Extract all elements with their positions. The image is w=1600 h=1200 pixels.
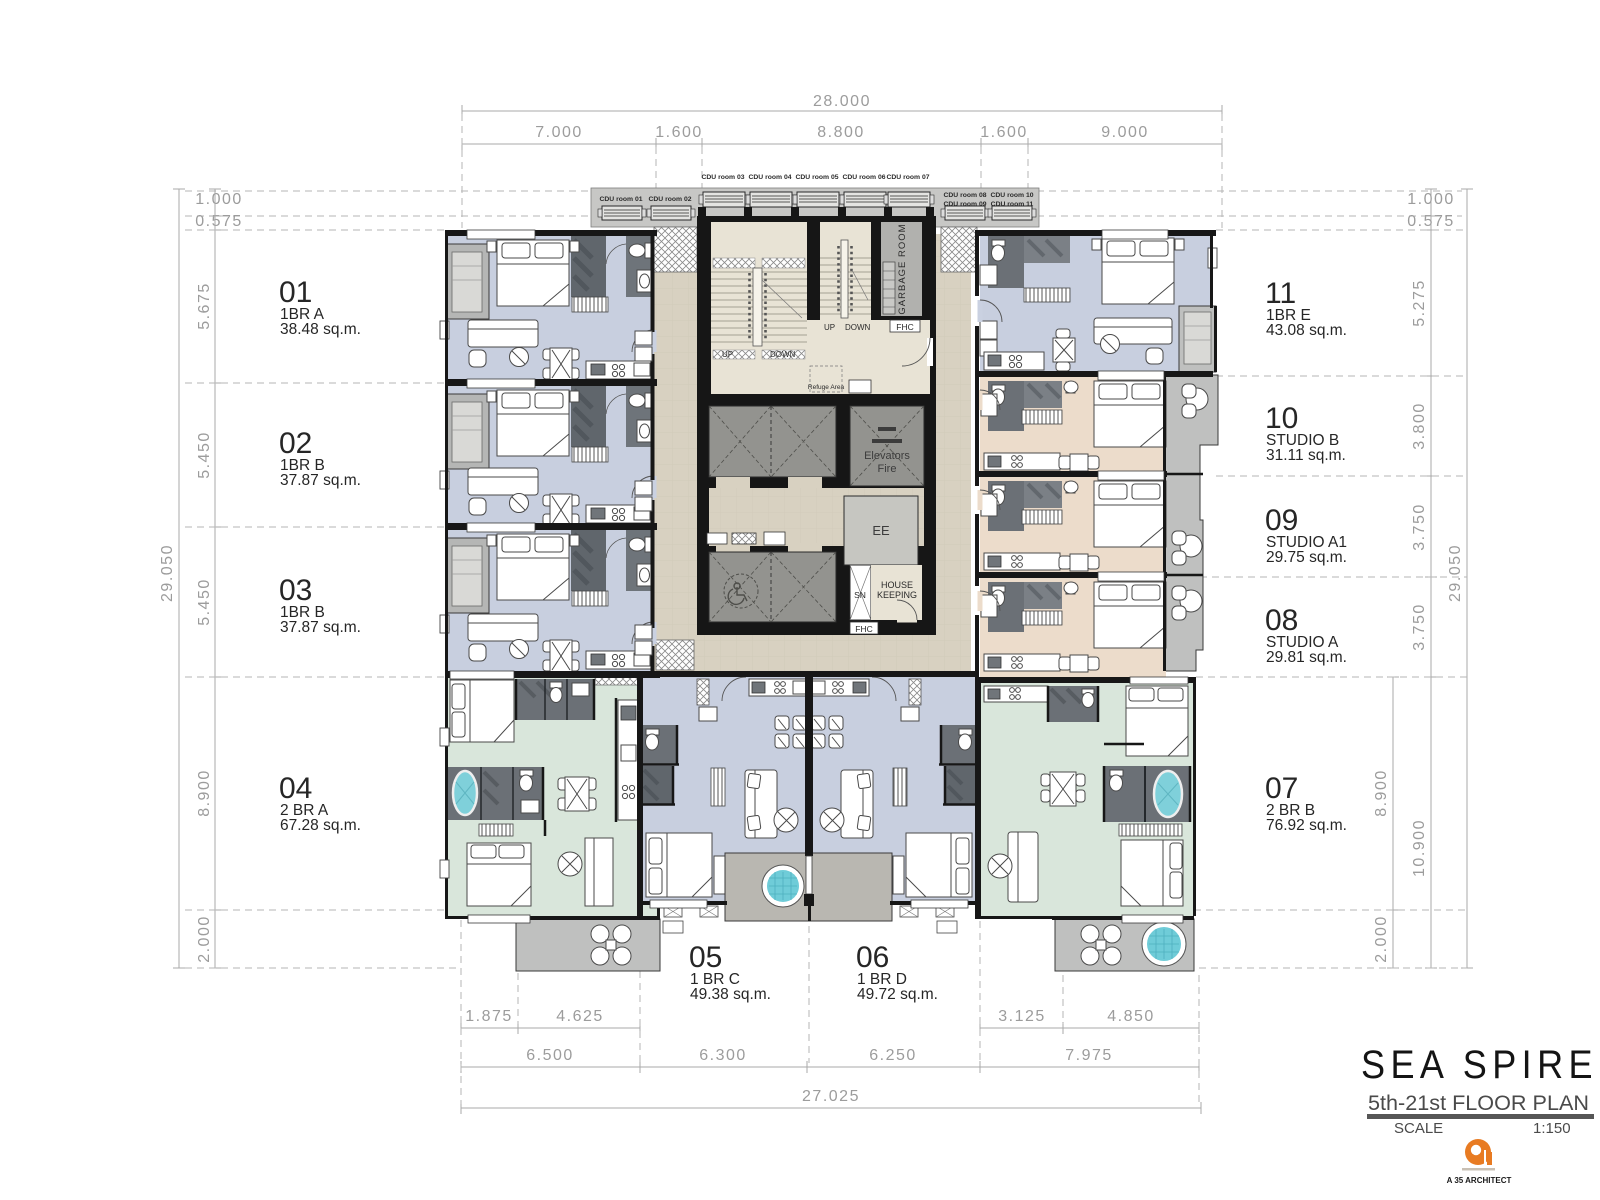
svg-text:CDU room 05: CDU room 05 xyxy=(795,174,838,181)
svg-text:01: 01 xyxy=(279,276,312,309)
svg-text:CDU room 02: CDU room 02 xyxy=(648,196,691,203)
svg-text:SCALE: SCALE xyxy=(1394,1120,1443,1137)
svg-text:3.750: 3.750 xyxy=(1411,603,1428,651)
svg-text:1:150: 1:150 xyxy=(1533,1120,1571,1137)
svg-text:5th-21st FLOOR PLAN: 5th-21st FLOOR PLAN xyxy=(1368,1092,1589,1115)
svg-text:6.300: 6.300 xyxy=(699,1047,747,1064)
svg-text:5.450: 5.450 xyxy=(196,578,213,626)
svg-text:8.900: 8.900 xyxy=(196,769,213,817)
svg-text:3.125: 3.125 xyxy=(998,1008,1046,1025)
svg-text:CDU room 09: CDU room 09 xyxy=(943,201,986,208)
svg-text:07: 07 xyxy=(1265,772,1298,805)
svg-text:SN: SN xyxy=(854,590,866,600)
svg-text:3.750: 3.750 xyxy=(1411,503,1428,551)
svg-text:5.450: 5.450 xyxy=(196,431,213,479)
svg-text:49.38 sq.m.: 49.38 sq.m. xyxy=(690,986,771,1003)
svg-text:1.875: 1.875 xyxy=(465,1008,513,1025)
svg-text:KEEPING: KEEPING xyxy=(877,590,917,600)
svg-text:2.000: 2.000 xyxy=(196,915,213,963)
svg-text:29.81 sq.m.: 29.81 sq.m. xyxy=(1266,649,1347,666)
svg-text:DOWN: DOWN xyxy=(770,350,796,359)
svg-text:Fire: Fire xyxy=(878,463,897,475)
svg-text:FHC: FHC xyxy=(896,322,913,332)
svg-text:43.08 sq.m.: 43.08 sq.m. xyxy=(1266,322,1347,339)
svg-text:6.500: 6.500 xyxy=(526,1047,574,1064)
svg-text:1.600: 1.600 xyxy=(655,124,703,141)
svg-text:CDU room 01: CDU room 01 xyxy=(599,196,642,203)
svg-text:4.850: 4.850 xyxy=(1107,1008,1155,1025)
svg-text:Refuge Area: Refuge Area xyxy=(808,384,845,391)
svg-text:2.000: 2.000 xyxy=(1373,915,1390,963)
svg-text:CDU room 08: CDU room 08 xyxy=(943,192,986,199)
svg-text:67.28 sq.m.: 67.28 sq.m. xyxy=(280,817,361,834)
svg-text:7.975: 7.975 xyxy=(1065,1047,1113,1064)
svg-text:37.87 sq.m.: 37.87 sq.m. xyxy=(280,472,361,489)
svg-text:CDU room 06: CDU room 06 xyxy=(842,174,885,181)
svg-text:5.675: 5.675 xyxy=(196,282,213,330)
svg-text:08: 08 xyxy=(1265,604,1298,637)
svg-text:29.75 sq.m.: 29.75 sq.m. xyxy=(1266,549,1347,566)
svg-text:8.800: 8.800 xyxy=(817,124,865,141)
svg-text:EE: EE xyxy=(872,523,890,538)
svg-text:1.600: 1.600 xyxy=(980,124,1028,141)
svg-text:29.050: 29.050 xyxy=(1447,544,1464,602)
svg-text:GARBAGE ROOM: GARBAGE ROOM xyxy=(897,223,908,314)
svg-text:SEA SPIRE: SEA SPIRE xyxy=(1361,1043,1598,1087)
svg-text:37.87 sq.m.: 37.87 sq.m. xyxy=(280,619,361,636)
svg-text:05: 05 xyxy=(689,941,722,974)
svg-text:10.900: 10.900 xyxy=(1411,819,1428,877)
svg-text:06: 06 xyxy=(856,941,889,974)
svg-text:FHC: FHC xyxy=(855,624,872,634)
svg-text:Elevators: Elevators xyxy=(864,450,910,462)
svg-text:28.000: 28.000 xyxy=(813,93,871,110)
svg-text:UP: UP xyxy=(722,350,733,359)
svg-text:HOUSE: HOUSE xyxy=(881,580,913,590)
svg-text:38.48 sq.m.: 38.48 sq.m. xyxy=(280,321,361,338)
svg-text:4.625: 4.625 xyxy=(556,1008,604,1025)
svg-text:1.000: 1.000 xyxy=(195,191,243,208)
svg-text:03: 03 xyxy=(279,574,312,607)
svg-text:CDU room 04: CDU room 04 xyxy=(748,174,791,181)
svg-text:CDU room 10: CDU room 10 xyxy=(990,192,1033,199)
svg-text:02: 02 xyxy=(279,427,312,460)
svg-text:04: 04 xyxy=(279,772,312,805)
svg-text:11: 11 xyxy=(1265,277,1296,310)
svg-text:UP: UP xyxy=(824,323,835,332)
svg-text:29.050: 29.050 xyxy=(159,544,176,602)
svg-text:7.000: 7.000 xyxy=(535,124,583,141)
svg-text:6.250: 6.250 xyxy=(869,1047,917,1064)
svg-text:CDU room 03: CDU room 03 xyxy=(701,174,744,181)
svg-text:10: 10 xyxy=(1265,402,1298,435)
svg-text:31.11 sq.m.: 31.11 sq.m. xyxy=(1266,447,1346,464)
svg-text:3.800: 3.800 xyxy=(1411,402,1428,450)
svg-text:5.275: 5.275 xyxy=(1411,279,1428,327)
svg-text:A 35 ARCHITECT: A 35 ARCHITECT xyxy=(1447,1176,1512,1185)
svg-text:09: 09 xyxy=(1265,504,1298,537)
svg-text:CDU room 07: CDU room 07 xyxy=(886,174,929,181)
svg-text:CDU room 11: CDU room 11 xyxy=(991,201,1034,208)
svg-text:49.72 sq.m.: 49.72 sq.m. xyxy=(857,986,938,1003)
svg-text:76.92 sq.m.: 76.92 sq.m. xyxy=(1266,817,1347,834)
svg-text:DOWN: DOWN xyxy=(845,323,871,332)
svg-text:27.025: 27.025 xyxy=(802,1088,860,1105)
svg-text:9.000: 9.000 xyxy=(1101,124,1149,141)
svg-text:8.900: 8.900 xyxy=(1373,769,1390,817)
